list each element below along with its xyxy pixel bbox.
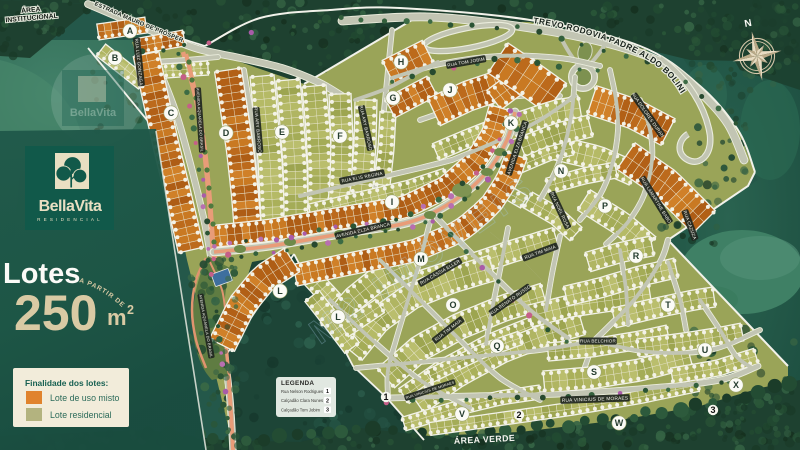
svg-text:S: S: [591, 367, 597, 377]
svg-text:Finalidade dos lotes:: Finalidade dos lotes:: [25, 378, 108, 388]
svg-text:O: O: [449, 300, 456, 310]
svg-text:J: J: [447, 85, 452, 95]
svg-text:3: 3: [326, 408, 329, 414]
svg-text:Calçadão Clara Nunes: Calçadão Clara Nunes: [281, 398, 323, 403]
svg-text:m: m: [107, 305, 127, 330]
svg-text:Q: Q: [493, 341, 500, 351]
svg-text:I: I: [391, 197, 394, 207]
svg-text:RESIDENCIAL: RESIDENCIAL: [37, 217, 103, 222]
svg-text:1: 1: [326, 389, 329, 395]
svg-text:E: E: [279, 127, 285, 137]
svg-text:L: L: [277, 286, 283, 296]
svg-text:L: L: [335, 312, 341, 322]
svg-text:R: R: [633, 251, 640, 261]
svg-text:D: D: [223, 128, 230, 138]
svg-text:RUA BELCHIOR: RUA BELCHIOR: [580, 339, 616, 344]
svg-text:V: V: [459, 409, 465, 419]
svg-text:2: 2: [516, 410, 521, 420]
svg-text:G: G: [389, 93, 396, 103]
svg-text:1: 1: [383, 392, 388, 402]
svg-text:M: M: [417, 254, 425, 264]
svg-text:3: 3: [710, 405, 715, 415]
svg-text:B: B: [112, 53, 119, 63]
svg-text:250: 250: [14, 285, 97, 341]
svg-text:2: 2: [326, 398, 329, 404]
svg-text:P: P: [602, 201, 608, 211]
svg-text:K: K: [508, 118, 515, 128]
svg-text:H: H: [398, 57, 405, 67]
svg-text:BellaVita: BellaVita: [39, 198, 102, 215]
svg-text:LEGENDA: LEGENDA: [281, 380, 314, 387]
svg-text:2: 2: [127, 303, 134, 317]
svg-text:U: U: [702, 345, 709, 355]
svg-text:T: T: [665, 300, 671, 310]
svg-text:Lote residencial: Lote residencial: [50, 410, 112, 420]
svg-text:N: N: [558, 166, 565, 176]
svg-text:X: X: [733, 380, 739, 390]
svg-text:C: C: [168, 108, 175, 118]
svg-text:Rua Nelson Rodrigues: Rua Nelson Rodrigues: [281, 389, 323, 394]
svg-text:BellaVita: BellaVita: [70, 107, 117, 119]
svg-text:A: A: [127, 26, 134, 36]
svg-text:F: F: [337, 131, 343, 141]
svg-text:Calçadão Tom Jobim: Calçadão Tom Jobim: [281, 408, 321, 413]
svg-text:W: W: [615, 418, 624, 428]
svg-text:Lote de uso misto: Lote de uso misto: [50, 393, 120, 403]
